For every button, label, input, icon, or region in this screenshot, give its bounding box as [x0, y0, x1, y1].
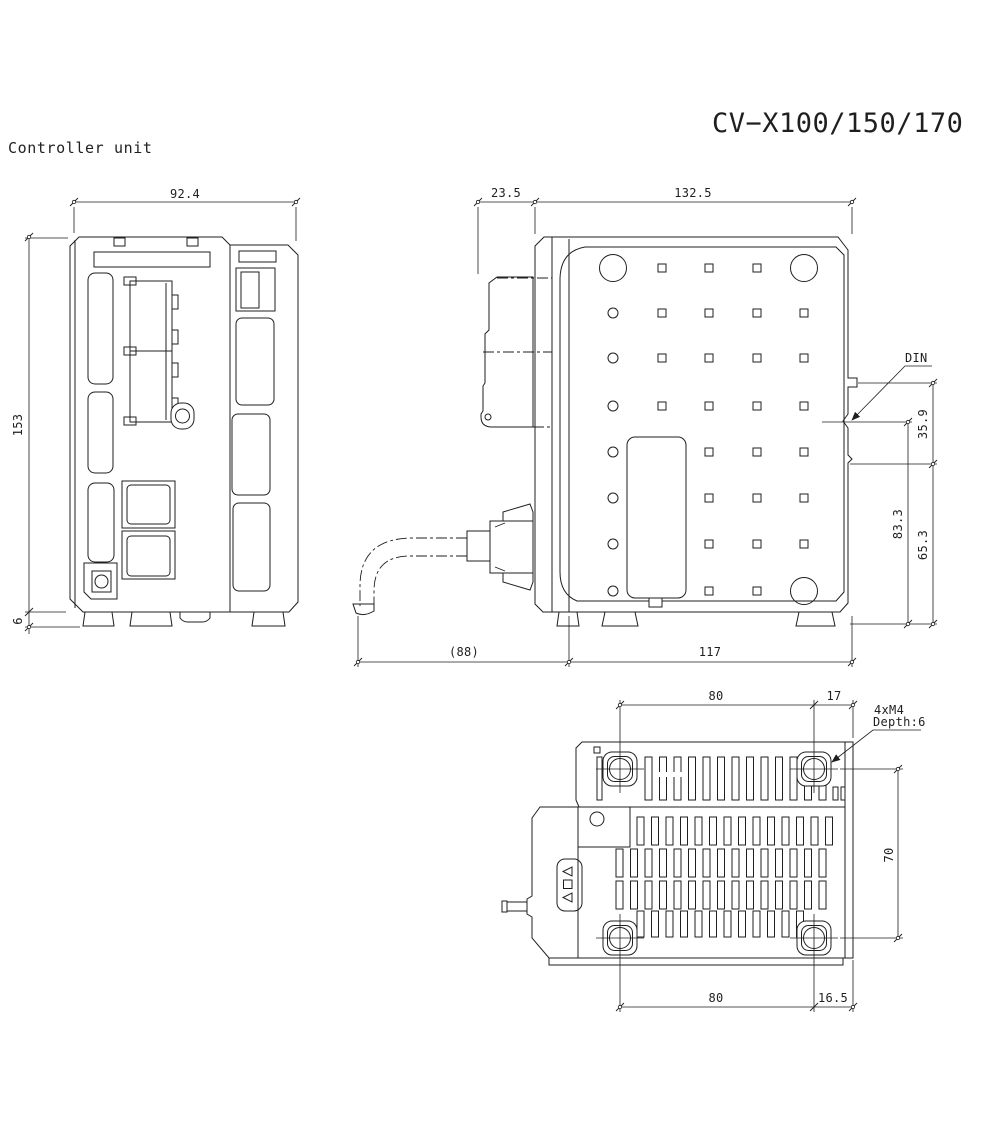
dim-din-top-label: 35.9 [916, 409, 930, 439]
side-body [535, 237, 857, 612]
front-power-connector [84, 563, 117, 599]
thumbscrew [171, 403, 194, 429]
dim-hole-pitch-bottom-label: 80 [708, 991, 723, 1005]
side-front-attachment [481, 277, 552, 427]
technical-drawing: Controller unit CV−X100/150/170 [0, 0, 1000, 1122]
model-title: CV−X100/150/170 [712, 108, 963, 139]
screw-note-leader: 4xM4 Depth:6 [832, 703, 926, 762]
front-camera-connectors [124, 277, 194, 429]
mounting-hole-top-left [596, 745, 644, 793]
bottom-view: 80 17 70 80 16.5 4xM4 Depth:6 [502, 689, 926, 1012]
dim-width-label: 92.4 [170, 187, 200, 201]
connector-latch-top [503, 504, 533, 521]
dim-hole-edge-top-label: 17 [826, 689, 841, 703]
front-usb-ports [122, 481, 175, 579]
side-view: 23.5 132.5 (88) 117 35.9 83.3 65.3 DIN [353, 186, 937, 667]
front-feet [83, 612, 285, 626]
front-left-slots [88, 273, 114, 562]
dim-hole-edge-bottom-label: 16.5 [818, 991, 848, 1005]
screw-note-line2: Depth:6 [873, 715, 926, 729]
side-feet [557, 612, 835, 626]
cable-end [353, 604, 374, 615]
dim-foot-label: 6 [11, 617, 25, 625]
mounting-hole-bottom-right [790, 914, 838, 962]
front-vent-slot [94, 252, 210, 267]
connector-plug [490, 521, 533, 573]
bottom-cable-stub [502, 901, 527, 912]
dim-hole-pitch-side-label: 70 [882, 847, 896, 862]
drawing-sheet: Controller unit CV−X100/150/170 [0, 0, 1000, 1122]
dim-body-depth-label: 132.5 [674, 186, 712, 200]
sd-card-slot [236, 268, 275, 311]
connector-latch-bottom [503, 573, 533, 590]
front-top-tabs [114, 238, 198, 246]
side-label-plate [627, 437, 686, 607]
product-label: Controller unit [8, 139, 152, 157]
din-label: DIN [905, 351, 928, 365]
dim-hole-pitch-top-label: 80 [708, 689, 723, 703]
dim-base-depth-label: 117 [699, 645, 722, 659]
front-right-panel [232, 251, 276, 591]
front-dimensions: 92.4 153 6 [11, 187, 300, 634]
dim-din-span-label: 83.3 [891, 509, 905, 539]
front-view: 92.4 153 6 [11, 187, 300, 634]
dim-cable-clearance-label: (88) [449, 645, 479, 659]
dim-step-bottom-label: 65.3 [916, 530, 930, 560]
side-cable [353, 504, 533, 615]
cable-ferrule [467, 531, 490, 561]
din-rail-strip [845, 742, 853, 958]
dim-front-depth-label: 23.5 [491, 186, 521, 200]
dim-height-label: 153 [11, 414, 25, 437]
